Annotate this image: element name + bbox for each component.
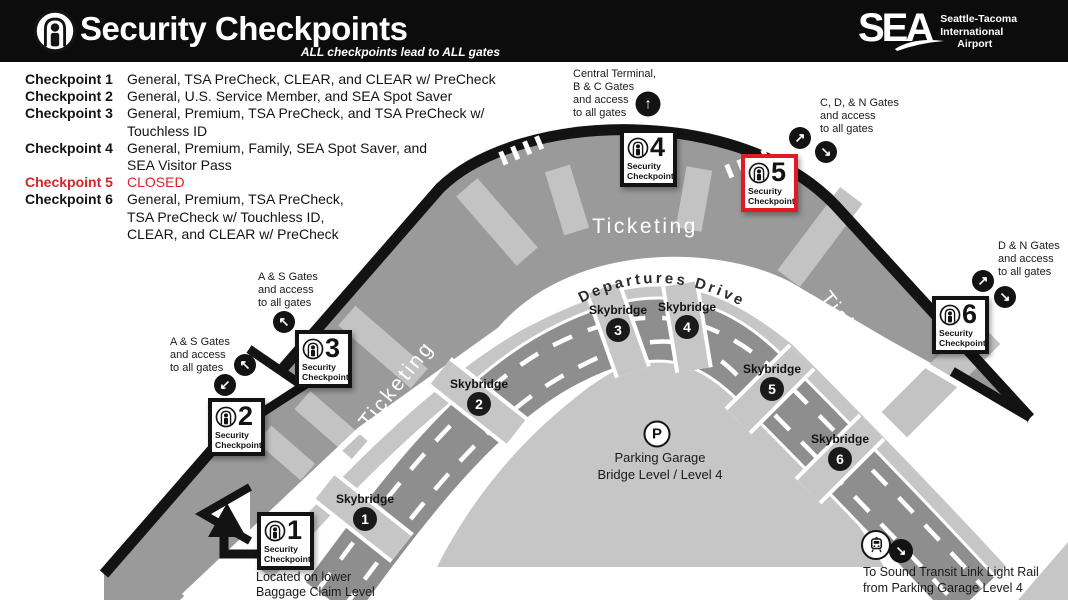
- security-scanner-icon: [302, 338, 324, 360]
- checkpoint-1-marker: 1 Security Checkpoint: [257, 512, 314, 570]
- legend-row-3: Checkpoint 3General, Premium, TSA PreChe…: [25, 105, 496, 139]
- skybridge-2-number: 2: [467, 392, 491, 416]
- airport-name: Seattle-Tacoma International Airport: [940, 6, 1017, 51]
- legend-row-4: Checkpoint 4General, Premium, Family, SE…: [25, 140, 496, 174]
- ticketing-label-center: Ticketing: [592, 215, 698, 239]
- checkpoint-2-marker: 2 Security Checkpoint: [208, 398, 265, 456]
- skybridge-3-number: 3: [606, 318, 630, 342]
- arrow-down-right-icon: ↘: [815, 141, 837, 163]
- security-scanner-icon: [215, 406, 237, 428]
- sea-logo-text: SEA: [858, 6, 931, 50]
- skybridge-3-marker: Skybridge3: [589, 303, 647, 342]
- as-gates-note-lower: A & S Gates and access to all gates: [170, 336, 230, 375]
- parking-garage-label: Parking Garage Bridge Level / Level 4: [597, 450, 722, 483]
- dn-gates-note: D & N Gates and access to all gates: [998, 240, 1060, 279]
- arrow-up-right-icon: ↗: [972, 270, 994, 292]
- checkpoint-5-marker-closed: 5 Security Checkpoint: [741, 154, 798, 212]
- arrow-down-right-icon: ↘: [889, 539, 913, 563]
- as-gates-note-upper: A & S Gates and access to all gates: [258, 271, 318, 310]
- sea-logo-swoosh-icon: [894, 36, 946, 52]
- legend-row-1: Checkpoint 1General, TSA PreCheck, CLEAR…: [25, 71, 496, 88]
- checkpoint-4-marker: 4 Security Checkpoint: [620, 129, 677, 187]
- parking-icon: P: [644, 421, 671, 448]
- arrow-up-left-icon: ↖: [273, 311, 295, 333]
- page-title: Security Checkpoints: [80, 10, 407, 48]
- security-scanner-icon: [32, 8, 78, 54]
- skybridge-1-marker: Skybridge1: [336, 492, 394, 531]
- skybridge-5-number: 5: [760, 377, 784, 401]
- light-rail-train-icon: [861, 530, 891, 560]
- header-bar: Security Checkpoints ALL checkpoints lea…: [0, 0, 1068, 62]
- skybridge-6-number: 6: [828, 447, 852, 471]
- arrow-up-right-icon: ↗: [789, 127, 811, 149]
- skybridge-4-number: 4: [675, 315, 699, 339]
- checkpoint-legend: Checkpoint 1General, TSA PreCheck, CLEAR…: [25, 71, 496, 243]
- checkpoint1-location-note: Located on lower Baggage Claim Level: [256, 570, 375, 600]
- page-subtitle: ALL checkpoints lead to ALL gates: [250, 45, 500, 59]
- skybridge-5-marker: Skybridge5: [743, 362, 801, 401]
- sea-airport-logo: SEA Seattle-Tacoma International Airport: [858, 6, 1017, 51]
- security-scanner-icon: [748, 162, 770, 184]
- security-scanner-icon: [264, 520, 286, 542]
- legend-row-6: Checkpoint 6General, Premium, TSA PreChe…: [25, 191, 496, 243]
- security-scanner-icon: [627, 137, 649, 159]
- checkpoint-3-marker: 3 Security Checkpoint: [295, 330, 352, 388]
- skybridge-1-number: 1: [353, 507, 377, 531]
- airport-checkpoint-map-page: Departures Drive Security Checkpoints AL…: [0, 0, 1068, 600]
- checkpoint-6-marker: 6 Security Checkpoint: [932, 296, 989, 354]
- light-rail-note: To Sound Transit Link Light Rail from Pa…: [863, 565, 1039, 596]
- arrow-down-left-icon: ↙: [214, 374, 236, 396]
- skybridge-6-marker: Skybridge6: [811, 432, 869, 471]
- legend-row-2: Checkpoint 2General, U.S. Service Member…: [25, 88, 496, 105]
- skybridge-4-marker: Skybridge4: [658, 300, 716, 339]
- cdn-gates-note: C, D, & N Gates and access to all gates: [820, 97, 899, 136]
- security-scanner-icon: [939, 304, 961, 326]
- skybridge-2-marker: Skybridge2: [450, 377, 508, 416]
- legend-row-5-closed: Checkpoint 5CLOSED: [25, 174, 496, 191]
- arrow-down-right-icon: ↘: [994, 286, 1016, 308]
- arrow-up-icon: ↑: [636, 92, 661, 117]
- arrow-up-left-icon: ↖: [234, 354, 256, 376]
